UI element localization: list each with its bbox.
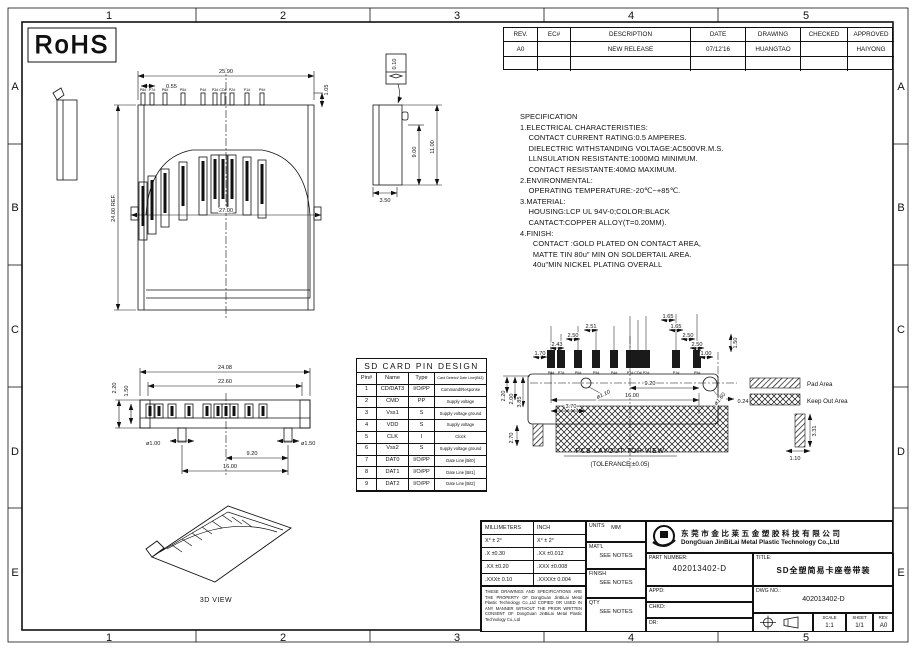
pad-area-swatch-icon bbox=[750, 378, 800, 388]
dim-label: 22.60 bbox=[218, 379, 232, 385]
pin-cell: 1 bbox=[357, 385, 377, 397]
pin-cell: 8 bbox=[357, 467, 377, 479]
appd-cell: APPD: bbox=[646, 586, 753, 602]
pin-cell: 2 bbox=[357, 397, 377, 409]
units-cell: UNITS MM bbox=[586, 521, 646, 542]
view-3d-drawing bbox=[146, 506, 291, 582]
dim-label: 3.50 bbox=[380, 198, 391, 204]
dim-label: ø1.10 bbox=[596, 389, 612, 401]
side-view-labels: 9.00 11.00 3.50 0.10 bbox=[380, 59, 436, 204]
part-number-value: 402013402-D bbox=[647, 564, 752, 573]
tol-header: MILLIMETERS bbox=[482, 522, 534, 535]
rev-cell: REV. A0 bbox=[873, 613, 894, 632]
dim-label: 9.20 bbox=[645, 381, 656, 387]
pcb-layout-drawing bbox=[503, 314, 810, 468]
pin-cell: Vss2 bbox=[377, 444, 409, 456]
rev-cell-empty bbox=[571, 57, 691, 71]
pin-cell: I bbox=[409, 432, 435, 444]
chkd-label: CHKD: bbox=[647, 603, 752, 610]
appd-label: APPD: bbox=[647, 587, 752, 594]
pin-cell: Supply voltage ground bbox=[435, 444, 486, 456]
pin-cell: 9 bbox=[357, 479, 377, 491]
zone-label: 4 bbox=[628, 10, 634, 22]
pin-label: P1# bbox=[244, 88, 252, 92]
dim-label: 2.20 bbox=[112, 383, 118, 394]
pin-label: P8# bbox=[140, 88, 148, 92]
dim-label: 2.00 bbox=[509, 394, 515, 405]
drawing-title-label: TITLE: bbox=[754, 554, 893, 561]
dim-label: 2.50 bbox=[568, 333, 579, 339]
dim-label: 1.50 bbox=[124, 386, 130, 397]
pin-cell: DAT1 bbox=[377, 467, 409, 479]
pin-cell: Date Line [Bit1] bbox=[435, 467, 486, 479]
company-name-en: DongGuan JinBiLai Metal Plastic Technolo… bbox=[681, 539, 843, 546]
flatness-value: 0.10 bbox=[392, 59, 398, 70]
pin-col-header: Pin# bbox=[357, 373, 377, 385]
tol-cell: X° ± 2° bbox=[482, 535, 534, 548]
pin-label: P2# bbox=[643, 371, 651, 375]
finish-value: SEE NOTES bbox=[587, 580, 645, 586]
dim-label: 0.24 bbox=[738, 399, 749, 405]
dim-label: 16.00 bbox=[625, 393, 639, 399]
dwg-no-label: DWG NO.: bbox=[754, 587, 893, 594]
pin-cell: Supply voltage bbox=[435, 420, 486, 432]
zone-label: 1 bbox=[106, 10, 112, 22]
part-number-label: PART NUMBER: bbox=[647, 554, 752, 561]
rev-cell-empty bbox=[746, 57, 801, 71]
pin-label: P8# bbox=[548, 371, 556, 375]
rev-cell-description: NEW RELEASE bbox=[571, 42, 691, 57]
finish-cell: FINISH SEE NOTES bbox=[586, 569, 646, 598]
dim-label: 24.08 bbox=[218, 365, 232, 371]
rev-cell-empty bbox=[848, 57, 894, 71]
pin-label: P2# bbox=[229, 88, 237, 92]
pin-cell: CD/DAT3 bbox=[377, 385, 409, 397]
pin-cell: DAT2 bbox=[377, 479, 409, 491]
rev-header-rev: REV. bbox=[504, 28, 538, 42]
pcb-pads bbox=[547, 350, 701, 368]
pin-cell: I/O/PP bbox=[409, 479, 435, 491]
legend-keepout-label: Keep Out Area bbox=[807, 398, 848, 405]
dim-label: 9.00 bbox=[412, 147, 418, 158]
pin-cell: S bbox=[409, 444, 435, 456]
end-view-drawing bbox=[53, 88, 77, 180]
pin-label: CD# bbox=[634, 371, 642, 375]
zone-label: B bbox=[897, 202, 904, 214]
view-3d-label: 3D VIEW bbox=[200, 597, 232, 604]
zone-label: 2 bbox=[280, 632, 286, 644]
tol-cell: .XX ±0.012 bbox=[534, 548, 585, 561]
tol-cell: .X ±0.30 bbox=[482, 548, 534, 561]
pin-table-title: SD CARD PIN DESIGN bbox=[357, 359, 486, 373]
pin-label: P4# bbox=[611, 371, 619, 375]
zone-label: 5 bbox=[803, 632, 809, 644]
material-value: SEE NOTES bbox=[587, 553, 645, 559]
revision-table: REV. EC# DESCRIPTION DATE DRAWING CHECKE… bbox=[503, 27, 893, 70]
front-view-contacts bbox=[139, 155, 266, 240]
dim-label: 27.00 bbox=[219, 208, 233, 214]
pin-cell: I/O/PP bbox=[409, 456, 435, 468]
dim-label: 2.50 bbox=[692, 342, 703, 348]
finish-label: FINISH bbox=[587, 570, 645, 577]
material-label: MAT'L bbox=[587, 543, 645, 550]
drawing-title-cell: TITLE: SD全塑简易卡座卷带装 bbox=[753, 553, 894, 586]
pin-cell: Vss1 bbox=[377, 408, 409, 420]
dim-label: 2.43 bbox=[552, 342, 563, 348]
pin-cell: I/O/PP bbox=[409, 467, 435, 479]
tol-header: INCH bbox=[534, 522, 585, 535]
pin-label: P6# bbox=[575, 371, 583, 375]
zone-label: 5 bbox=[803, 10, 809, 22]
pin-cell: 3 bbox=[357, 408, 377, 420]
pcb-view-tolerance: (TOLERANCE:±0.05) bbox=[591, 461, 650, 468]
drawing-title-value: SD全塑简易卡座卷带装 bbox=[754, 565, 893, 576]
zone-label: 2 bbox=[280, 10, 286, 22]
dr-cell: DR: bbox=[646, 618, 753, 632]
pin-label: P7# bbox=[558, 371, 566, 375]
material-cell: MAT'L SEE NOTES bbox=[586, 542, 646, 569]
front-pin-labels: P8# P7# P6# P5# P4# P3# CD# P2# P1# P9# bbox=[140, 88, 267, 92]
zone-label: C bbox=[11, 324, 19, 336]
zone-label: A bbox=[11, 81, 19, 93]
title-block: MILLIMETERS INCH X° ± 2° X° ± 2° .X ±0.3… bbox=[480, 520, 893, 632]
dim-label: ø1.00 bbox=[146, 441, 160, 447]
front-view-drawing bbox=[114, 68, 326, 320]
zone-label: 3 bbox=[454, 632, 460, 644]
rev-cell-checked bbox=[801, 42, 848, 57]
pin-label: P4# bbox=[200, 88, 208, 92]
dim-label: 2.20 bbox=[501, 391, 507, 402]
pin-label: CD# bbox=[219, 88, 227, 92]
pin-cell: 7 bbox=[357, 456, 377, 468]
zone-label: E bbox=[897, 567, 904, 579]
rev-label: REV. bbox=[879, 615, 889, 620]
rohs-label: RoHS bbox=[35, 31, 110, 59]
zone-label: D bbox=[897, 446, 905, 458]
projection-symbol-icon bbox=[754, 614, 812, 631]
pad-region-left bbox=[533, 424, 543, 446]
rev-header-approved: APPROVED bbox=[848, 28, 894, 42]
rev-value: A0 bbox=[880, 622, 888, 629]
pin-label: P3# bbox=[627, 371, 635, 375]
pin-label: P5# bbox=[180, 88, 188, 92]
pin-cell: VDD bbox=[377, 420, 409, 432]
dim-label: 2.51 bbox=[586, 324, 597, 330]
bottom-view-drawing bbox=[115, 368, 310, 476]
dim-label: 3.85 bbox=[517, 397, 523, 408]
rev-cell-ec bbox=[538, 42, 571, 57]
pin-cell: S bbox=[409, 420, 435, 432]
tol-cell: .XXX ±0.008 bbox=[534, 561, 585, 574]
pin-cell: Date Line [Bit0] bbox=[435, 456, 486, 468]
qty-cell: QTY SEE NOTES bbox=[586, 598, 646, 632]
rev-cell-empty bbox=[691, 57, 746, 71]
zone-label: 1 bbox=[106, 632, 112, 644]
dim-label: ø1.50 bbox=[301, 441, 315, 447]
pin-label: P9# bbox=[259, 88, 267, 92]
pin-cell: PP bbox=[409, 397, 435, 409]
chkd-cell: CHKD: bbox=[646, 602, 753, 618]
company-logo-icon bbox=[650, 523, 678, 551]
sheet-value: 1/1 bbox=[855, 622, 864, 629]
rev-header-checked: CHECKED bbox=[801, 28, 848, 42]
keepout-area-swatch-icon bbox=[750, 394, 800, 405]
dim-label: 1.05 bbox=[324, 85, 330, 96]
legend-pad-label: Pad Area bbox=[807, 381, 833, 388]
dim-label: 1.65 bbox=[671, 324, 682, 330]
front-view-leads bbox=[141, 93, 264, 105]
dim-label: 24.00 REF. bbox=[111, 194, 117, 222]
pin-cell: Supply voltage ground bbox=[435, 408, 486, 420]
pin-cell: 6 bbox=[357, 444, 377, 456]
dim-label: 1.65 bbox=[663, 314, 674, 320]
pin-label: P5# bbox=[593, 371, 601, 375]
rev-cell-date: 07/12'16 bbox=[691, 42, 746, 57]
zone-label: E bbox=[11, 567, 18, 579]
sheet-cell: SHEET 1/1 bbox=[846, 613, 873, 632]
drawing-sheet: { "sheet": { "rohs": "RoHS", "zone_cols"… bbox=[0, 0, 916, 650]
dim-label: 9.20 bbox=[247, 451, 258, 457]
company-name-cn: 东莞市金比莱五金塑胶科技有限公司 bbox=[681, 528, 843, 539]
bottom-view-contacts bbox=[146, 404, 267, 418]
rev-header-description: DESCRIPTION bbox=[571, 28, 691, 42]
pin-cell: CLK bbox=[377, 432, 409, 444]
pin-label: P3# bbox=[212, 88, 220, 92]
dim-label: 3.31 bbox=[812, 426, 818, 437]
zone-label: 3 bbox=[454, 10, 460, 22]
dim-label: 1.10 bbox=[790, 456, 801, 462]
dim-label: 25.90 bbox=[219, 69, 233, 75]
pin-label: P6# bbox=[162, 88, 170, 92]
rohs-badge: RoHS bbox=[28, 28, 116, 62]
pin-cell: 5 bbox=[357, 432, 377, 444]
rev-cell-approved: HAIYONG bbox=[848, 42, 894, 57]
specification-text: SPECIFICATION 1.ELECTRICAL CHARACTERISTI… bbox=[520, 112, 820, 271]
scale-label: SCALE bbox=[822, 615, 836, 620]
part-number-cell: PART NUMBER: 402013402-D bbox=[646, 553, 753, 586]
pin-col-header: Name bbox=[377, 373, 409, 385]
pin-cell: Clock bbox=[435, 432, 486, 444]
pcb-view-title: PCB LAYOUT TOP VIEW bbox=[576, 448, 665, 455]
pin-col-header: Card Detetct/ Date Line(Bit3) bbox=[435, 373, 486, 385]
pin-label: P1# bbox=[673, 371, 681, 375]
company-block: 东莞市金比莱五金塑胶科技有限公司 DongGuan JinBiLai Metal… bbox=[646, 521, 893, 553]
scale-value: 1:1 bbox=[825, 622, 834, 629]
dim-label: 1.70 bbox=[535, 351, 546, 357]
qty-value: SEE NOTES bbox=[587, 609, 645, 615]
pad-region-right bbox=[795, 414, 805, 447]
rev-cell-empty bbox=[538, 57, 571, 71]
side-view-drawing bbox=[373, 54, 442, 197]
rev-header-ec: EC# bbox=[538, 28, 571, 42]
sheet-label: SHEET bbox=[852, 615, 866, 620]
tol-cell: .XX ±0.20 bbox=[482, 561, 534, 574]
pin-col-header: Type bbox=[409, 373, 435, 385]
dim-label: ø1.60 bbox=[713, 391, 727, 406]
dim-label: 1.00 bbox=[701, 351, 712, 357]
rev-header-drawing: DRAWING bbox=[746, 28, 801, 42]
zone-label: B bbox=[11, 202, 18, 214]
pin-cell: CMD bbox=[377, 397, 409, 409]
pin-cell: I/O/PP bbox=[409, 385, 435, 397]
pin-cell: S bbox=[409, 408, 435, 420]
zone-label: A bbox=[897, 81, 905, 93]
tol-cell: X° ± 2° bbox=[534, 535, 585, 548]
rev-cell-empty bbox=[801, 57, 848, 71]
pin-label: P7# bbox=[149, 88, 157, 92]
pin-cell: Command/Response bbox=[435, 385, 486, 397]
dim-label: 16.00 bbox=[223, 464, 237, 470]
tolerance-table: MILLIMETERS INCH X° ± 2° X° ± 2° .X ±0.3… bbox=[481, 521, 586, 586]
rev-cell-rev: A0 bbox=[504, 42, 538, 57]
rev-cell-empty bbox=[504, 57, 538, 71]
keepout-region bbox=[556, 406, 728, 452]
zone-label: 4 bbox=[628, 632, 634, 644]
pin-cell: Supply voltage bbox=[435, 397, 486, 409]
legal-notice: THESE DRAWINGS AND SPECIFICATIONS ARE TH… bbox=[481, 586, 586, 632]
dwg-no-value: 402013402-D bbox=[754, 596, 893, 603]
dr-label: DR: bbox=[647, 619, 752, 626]
dim-label: 11.00 bbox=[430, 140, 436, 154]
dim-label: 2.70 bbox=[509, 433, 515, 444]
rev-header-date: DATE bbox=[691, 28, 746, 42]
dim-label: 3.70 bbox=[566, 404, 577, 410]
projection-cell bbox=[753, 613, 813, 632]
dwg-no-cell: DWG NO.: 402013402-D bbox=[753, 586, 894, 613]
pin-cell: DAT0 bbox=[377, 456, 409, 468]
zone-label: C bbox=[897, 324, 905, 336]
rev-cell-drawing: HUANGTAO bbox=[746, 42, 801, 57]
hatch-legend: Pad Area Keep Out Area bbox=[750, 378, 848, 405]
pin-cell: 4 bbox=[357, 420, 377, 432]
pin-design-table: SD CARD PIN DESIGN Pin# Name Type Card D… bbox=[356, 358, 487, 492]
qty-label: QTY bbox=[587, 599, 645, 606]
pin-label: P9# bbox=[694, 371, 702, 375]
dim-label: 1.50 bbox=[733, 338, 739, 349]
dim-label: 2.50 bbox=[683, 333, 694, 339]
pin-cell: Date Line [Bit2] bbox=[435, 479, 486, 491]
zone-label: D bbox=[11, 446, 19, 458]
scale-cell: SCALE 1:1 bbox=[813, 613, 846, 632]
